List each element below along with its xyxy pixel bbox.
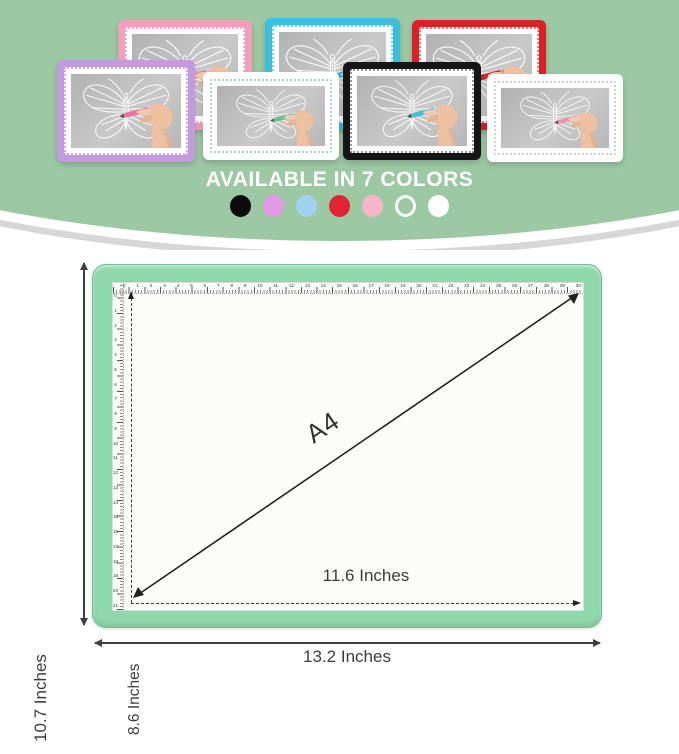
hand-with-pen	[112, 81, 181, 148]
ruler-number: 30	[576, 283, 581, 288]
ruler-number: 24	[480, 283, 485, 288]
outer-width-label: 13.2 Inches	[267, 647, 427, 667]
inner-height-label: 8.6 Inches	[125, 645, 145, 753]
ruler-number: 12	[289, 283, 294, 288]
ruler-number: 16	[113, 529, 118, 534]
ruler-number: 23	[464, 283, 469, 288]
ruler-number: 13	[113, 485, 118, 490]
inner-height-dashed-arrow	[131, 293, 132, 603]
light-pad-white-mint	[203, 72, 339, 160]
ruler-number: 12	[113, 470, 118, 475]
color-swatch-white-outline	[395, 195, 416, 217]
ruler-number: 10	[113, 441, 118, 446]
ruler-number: 4	[113, 352, 118, 357]
hero-section: AVAILABLE IN 7 COLORS	[0, 0, 679, 250]
ruler-number: 3	[163, 283, 166, 288]
ruler-number: 10	[257, 283, 262, 288]
pad-mat	[64, 67, 188, 155]
ruler-number: 8	[231, 283, 234, 288]
ruler-number: 17	[113, 544, 118, 549]
top-ruler-numbers: 0123456789101112131415161718192021222324…	[123, 283, 581, 288]
outer-width-arrow	[95, 642, 600, 644]
color-swatch-violet	[263, 195, 284, 217]
ruler-number: 19	[113, 573, 118, 578]
outer-height-label: 10.7 Inches	[30, 642, 52, 754]
light-pad-white	[487, 74, 623, 162]
color-swatch-red	[329, 195, 350, 217]
pad-screen	[357, 76, 467, 146]
hand-with-pen	[398, 83, 467, 146]
ruler-number: 8	[113, 411, 118, 416]
color-swatch-white	[428, 195, 449, 217]
ruler-number: 21	[113, 603, 118, 608]
inner-width-dashed-arrow	[131, 603, 579, 604]
light-pad-screen: 0123456789101112131415161718192021222324…	[113, 283, 583, 610]
ruler-number: 5	[190, 283, 193, 288]
ruler-number: 7	[217, 283, 220, 288]
ruler-number: 21	[432, 283, 437, 288]
color-swatch-pink	[362, 195, 383, 217]
ruler-number: 20	[113, 588, 118, 593]
ruler-number: 5	[113, 367, 118, 372]
ruler-number: 15	[337, 283, 342, 288]
pad-mat	[494, 81, 616, 155]
left-ruler-numbers: 0123456789101112131415161718192021	[113, 293, 118, 608]
ruler-number: 18	[113, 559, 118, 564]
ruler-number: 29	[560, 283, 565, 288]
ruler-number: 1	[136, 283, 139, 288]
ruler-number: 9	[113, 426, 118, 431]
dimensions-diagram: 10.7 Inches 0123456789101112131415161718…	[0, 250, 679, 665]
ruler-number: 18	[385, 283, 390, 288]
ruler-number: 28	[544, 283, 549, 288]
light-pad-black	[343, 62, 481, 160]
pad-screen	[217, 86, 325, 146]
ruler-number: 7	[113, 396, 118, 401]
ruler-number: 1	[113, 308, 118, 313]
color-swatch-light-blue	[296, 195, 317, 217]
hand-with-pen	[542, 94, 609, 148]
ruler-number: 27	[528, 283, 533, 288]
pad-screen	[501, 88, 609, 148]
pad-screen	[71, 74, 181, 148]
ruler-number: 13	[305, 283, 310, 288]
ruler-number: 9	[244, 283, 247, 288]
light-pad-purple	[57, 60, 195, 162]
ruler-number: 25	[496, 283, 501, 288]
ruler-number: 6	[204, 283, 207, 288]
outer-height-arrow	[83, 263, 85, 625]
pad-mat	[210, 79, 332, 153]
ruler-number: 22	[448, 283, 453, 288]
ruler-number: 14	[113, 500, 118, 505]
ruler-number: 11	[273, 283, 278, 288]
ruler-number: 19	[400, 283, 405, 288]
ruler-number: 17	[369, 283, 374, 288]
ruler-number: 14	[321, 283, 326, 288]
product-infographic: AVAILABLE IN 7 COLORS 10.7 Inches 012345…	[0, 0, 679, 665]
ruler-number: 0	[113, 293, 118, 298]
ruler-number: 4	[177, 283, 180, 288]
hand-with-pen	[258, 92, 325, 146]
ruler-number: 15	[113, 514, 118, 519]
color-swatches-row	[0, 195, 679, 217]
available-colors-heading: AVAILABLE IN 7 COLORS	[0, 168, 679, 192]
ruler-number: 2	[113, 323, 118, 328]
pad-mat	[350, 69, 474, 153]
inner-width-label: 11.6 Inches	[286, 566, 446, 586]
ruler-number: 11	[113, 455, 118, 460]
ruler-number: 3	[113, 337, 118, 342]
ruler-number: 20	[416, 283, 421, 288]
ruler-number: 16	[353, 283, 358, 288]
color-swatch-black	[230, 195, 251, 217]
ruler-number: 2	[150, 283, 153, 288]
ruler-number: 26	[512, 283, 517, 288]
ruler-number: 6	[113, 382, 118, 387]
